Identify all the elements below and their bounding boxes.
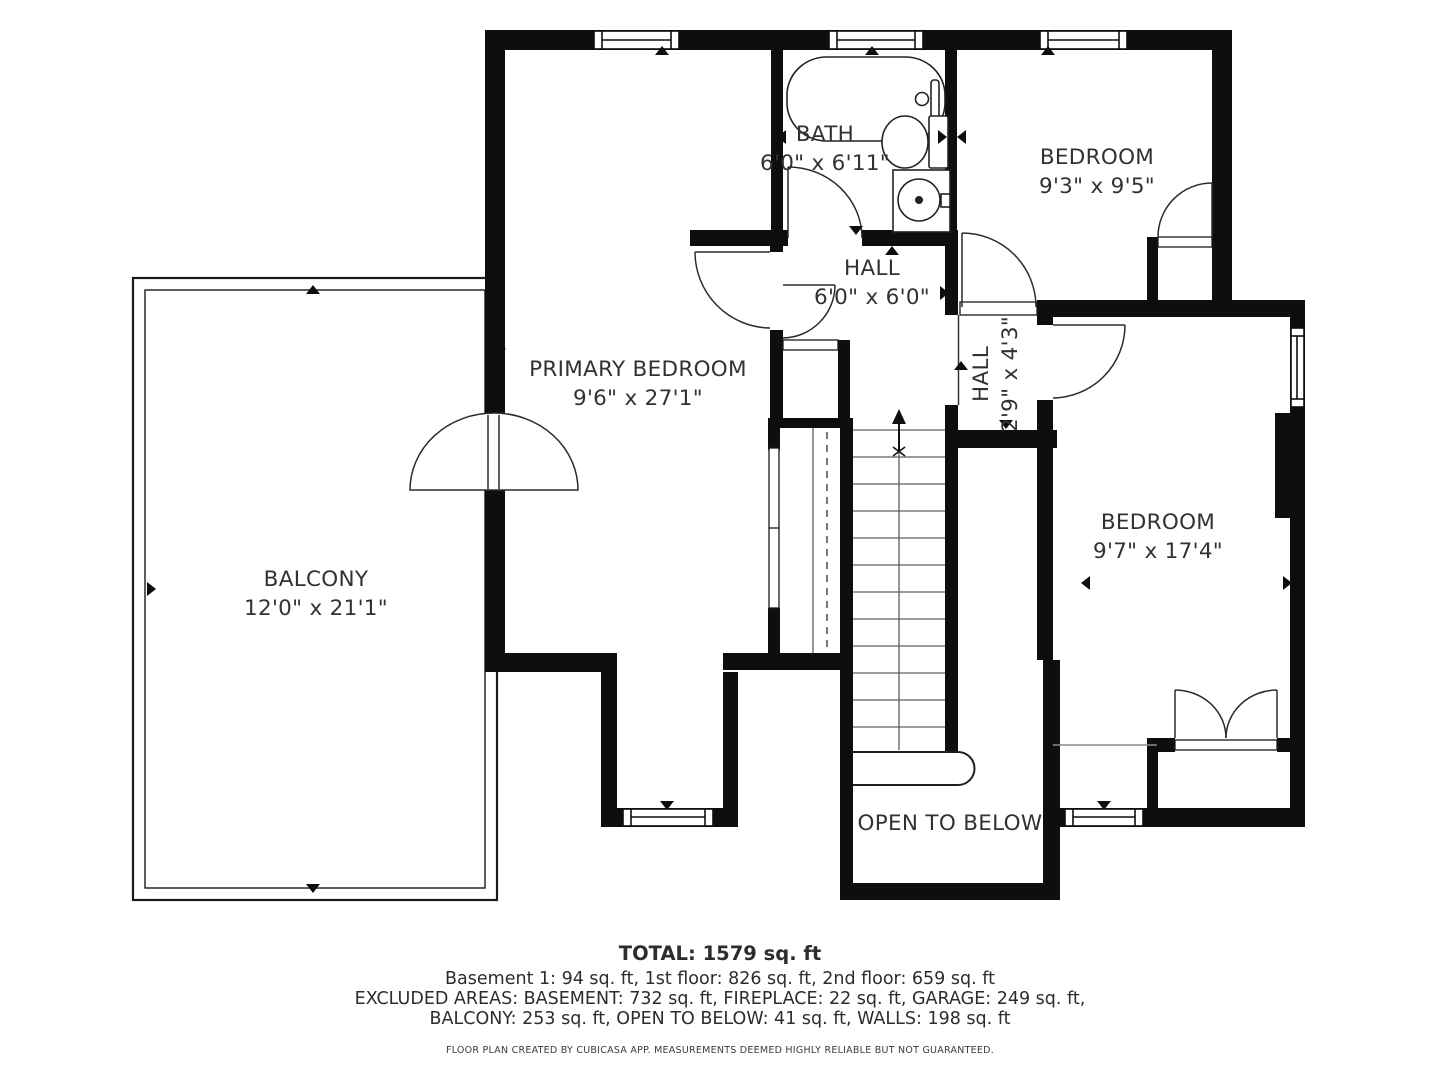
- bathtub-faucet-icon: [931, 80, 939, 118]
- bathtub-knob-icon: [916, 93, 929, 106]
- room-dims: 9'3" x 9'5": [1039, 172, 1155, 201]
- direction-marker: [957, 130, 966, 144]
- floor-plan-drawing: [0, 0, 1440, 1080]
- top-bedroom-door-icon: [962, 233, 1036, 307]
- closet-double-door-icon: [1175, 690, 1277, 738]
- room-label-bath: BATH 6'0" x 6'11": [760, 120, 890, 178]
- room-label-open-to-below: OPEN TO BELOW: [858, 809, 1043, 838]
- room-label-hall: HALL 6'0" x 6'0": [814, 254, 930, 312]
- room-name: BALCONY: [244, 565, 388, 594]
- window-icon: [594, 31, 679, 49]
- room-dims: 9'6" x 27'1": [529, 384, 747, 413]
- room-dims: 6'0" x 6'11": [760, 149, 890, 178]
- room-label-balcony: BALCONY 12'0" x 21'1": [244, 565, 388, 623]
- window-icon: [829, 31, 923, 49]
- bedroom-closet-door-icon: [1158, 183, 1212, 237]
- room-name: BATH: [760, 120, 890, 149]
- right-bedroom-door-icon: [1053, 325, 1125, 398]
- room-label-hall-small: HALL 2'9" x 4'3": [967, 316, 1025, 432]
- room-label-primary-bedroom: PRIMARY BEDROOM 9'6" x 27'1": [529, 355, 747, 413]
- room-dims: 2'9" x 4'3": [996, 316, 1025, 432]
- room-label-bedroom-top: BEDROOM 9'3" x 9'5": [1039, 143, 1155, 201]
- total-area: TOTAL: 1579 sq. ft: [0, 942, 1440, 965]
- disclaimer: FLOOR PLAN CREATED BY CUBICASA APP. MEAS…: [0, 1045, 1440, 1056]
- window-icon: [1065, 809, 1143, 826]
- room-dims: 12'0" x 21'1": [244, 594, 388, 623]
- direction-marker: [954, 361, 968, 370]
- room-label-bedroom-right: BEDROOM 9'7" x 17'4": [1093, 508, 1223, 566]
- room-name: OPEN TO BELOW: [858, 809, 1043, 838]
- floor-areas: Basement 1: 94 sq. ft, 1st floor: 826 sq…: [0, 969, 1440, 989]
- room-name: HALL: [814, 254, 930, 283]
- room-name: HALL: [967, 316, 996, 432]
- room-name: BEDROOM: [1039, 143, 1155, 172]
- room-dims: 9'7" x 17'4": [1093, 537, 1223, 566]
- direction-marker: [1081, 576, 1090, 590]
- hall-to-primary-door-icon: [695, 252, 770, 328]
- window-icon: [623, 809, 713, 826]
- stair-handrail: [853, 752, 975, 785]
- stairs-up-arrow: [892, 409, 906, 456]
- room-dims: 6'0" x 6'0": [814, 283, 930, 312]
- sink-faucet-icon: [941, 194, 950, 207]
- excluded-areas-line2: BALCONY: 253 sq. ft, OPEN TO BELOW: 41 s…: [0, 1009, 1440, 1029]
- room-name: PRIMARY BEDROOM: [529, 355, 747, 384]
- excluded-areas-line1: EXCLUDED AREAS: BASEMENT: 732 sq. ft, FI…: [0, 989, 1440, 1009]
- floor-plan-page: BATH 6'0" x 6'11" BEDROOM 9'3" x 9'5" HA…: [0, 0, 1440, 1080]
- window-icon: [1291, 328, 1304, 407]
- room-name: BEDROOM: [1093, 508, 1223, 537]
- direction-marker: [147, 582, 156, 596]
- staircase: [813, 428, 945, 750]
- balcony-door-icon: [410, 413, 578, 490]
- window-icon: [1040, 31, 1127, 49]
